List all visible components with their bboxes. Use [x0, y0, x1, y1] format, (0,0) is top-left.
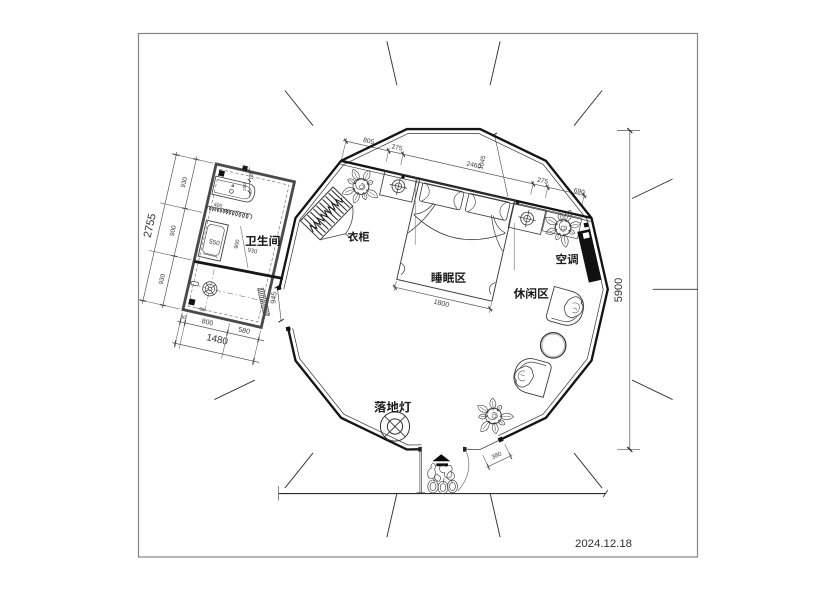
svg-text:100: 100 — [249, 172, 254, 180]
svg-text:250: 250 — [242, 183, 247, 191]
svg-text:2024.12.18: 2024.12.18 — [575, 538, 632, 550]
svg-text:5900: 5900 — [613, 278, 625, 302]
